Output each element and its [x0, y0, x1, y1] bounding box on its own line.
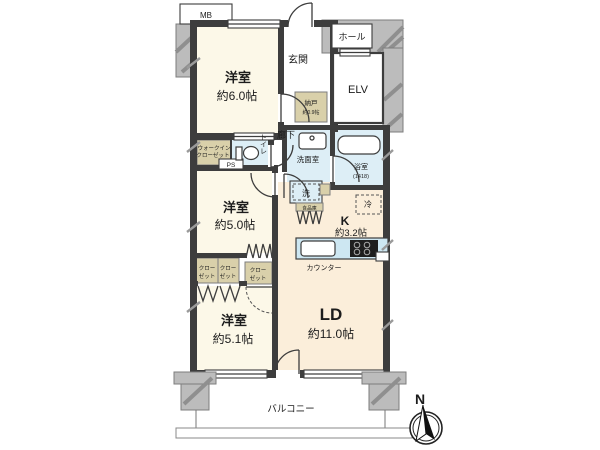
balcony-rail	[176, 428, 412, 438]
entrance-label: 玄関	[288, 53, 308, 66]
closet2-label-2: ゼット	[220, 272, 237, 280]
room-storage	[295, 92, 327, 122]
washer-label: 洗	[302, 188, 310, 198]
elevator-label: ELV	[348, 84, 369, 96]
compass-north-label: N	[415, 391, 425, 407]
room-living-dining-kitchen	[278, 182, 383, 370]
wall-bath-washroom-a	[330, 130, 335, 156]
pantry-label: 食品庫	[302, 205, 317, 212]
bedroom2-label: 洋室	[223, 200, 249, 215]
balcony-label: バルコニー	[267, 404, 314, 415]
wall-bedroom1-entrance	[278, 27, 284, 140]
shelf-box	[320, 184, 330, 195]
wic-label-1: ウォークイン	[197, 144, 231, 152]
bedroom3-label: 洋室	[221, 313, 247, 328]
corridor-label: 廊下	[277, 129, 295, 140]
bathtub	[338, 136, 380, 154]
wall-closets-top	[190, 253, 247, 258]
living-dining-size: 約11.0帖	[308, 326, 354, 341]
wall-bath-bottom	[330, 185, 390, 190]
refrigerator-label: 冷	[364, 199, 372, 209]
bedroom3-size: 約5.1帖	[213, 331, 254, 346]
living-dining-label: LD	[320, 305, 343, 324]
bathroom-label: 浴室	[354, 162, 368, 171]
floor-plan-drawing: MB ホール ELV 玄関 納戸 約0.9帖 廊下 洋室 約6.0帖 ウォークイ…	[0, 0, 600, 450]
kitchen-size: 約3.2帖	[335, 227, 368, 239]
toilet-bowl	[244, 147, 259, 160]
wall-washroom-top	[280, 125, 390, 130]
storage-label: 納戸	[305, 98, 319, 107]
bathroom-size-code: (1418)	[353, 174, 369, 180]
wall-left-outer	[190, 20, 197, 378]
floor-plan-page: MB ホール ELV 玄関 納戸 約0.9帖 廊下 洋室 約6.0帖 ウォークイ…	[0, 0, 600, 450]
counter-end-box	[376, 252, 389, 261]
balcony-column-right	[369, 384, 399, 410]
closet3-label-2: ゼット	[250, 274, 267, 282]
opening-entrance-door	[288, 20, 314, 27]
hall-label: ホール	[338, 32, 365, 42]
meter-box-label: MB	[200, 11, 212, 20]
washroom-label: 洗面室	[297, 154, 320, 164]
closet1-label-1: クロー	[199, 265, 216, 272]
closet3-label-1: クロー	[250, 267, 267, 274]
stove	[350, 240, 378, 257]
toilet-tank	[236, 147, 242, 160]
bedroom1-label: 洋室	[225, 70, 251, 85]
wall-bedroom3-ld	[272, 281, 278, 370]
pipe-space-label: PS	[227, 162, 236, 169]
wall-closets-bottom-a	[190, 281, 198, 286]
bedroom2-size: 約5.0帖	[215, 217, 256, 232]
opening-balcony-door	[276, 370, 300, 378]
closet1-label-2: ゼット	[199, 272, 216, 280]
kitchen-label: K	[341, 214, 350, 228]
counter-label: カウンター	[307, 263, 342, 272]
kitchen-sink	[301, 241, 335, 256]
wall-closets-bottom-b	[239, 281, 247, 286]
toilet-label: トイレ	[260, 134, 268, 155]
closet2-label-1: クロー	[220, 265, 237, 272]
storage-size: 約0.9帖	[303, 109, 320, 116]
wic-label-2: クローゼット	[196, 151, 229, 159]
bedroom1-size: 約6.0帖	[217, 88, 258, 103]
balcony-column-left	[181, 384, 209, 410]
